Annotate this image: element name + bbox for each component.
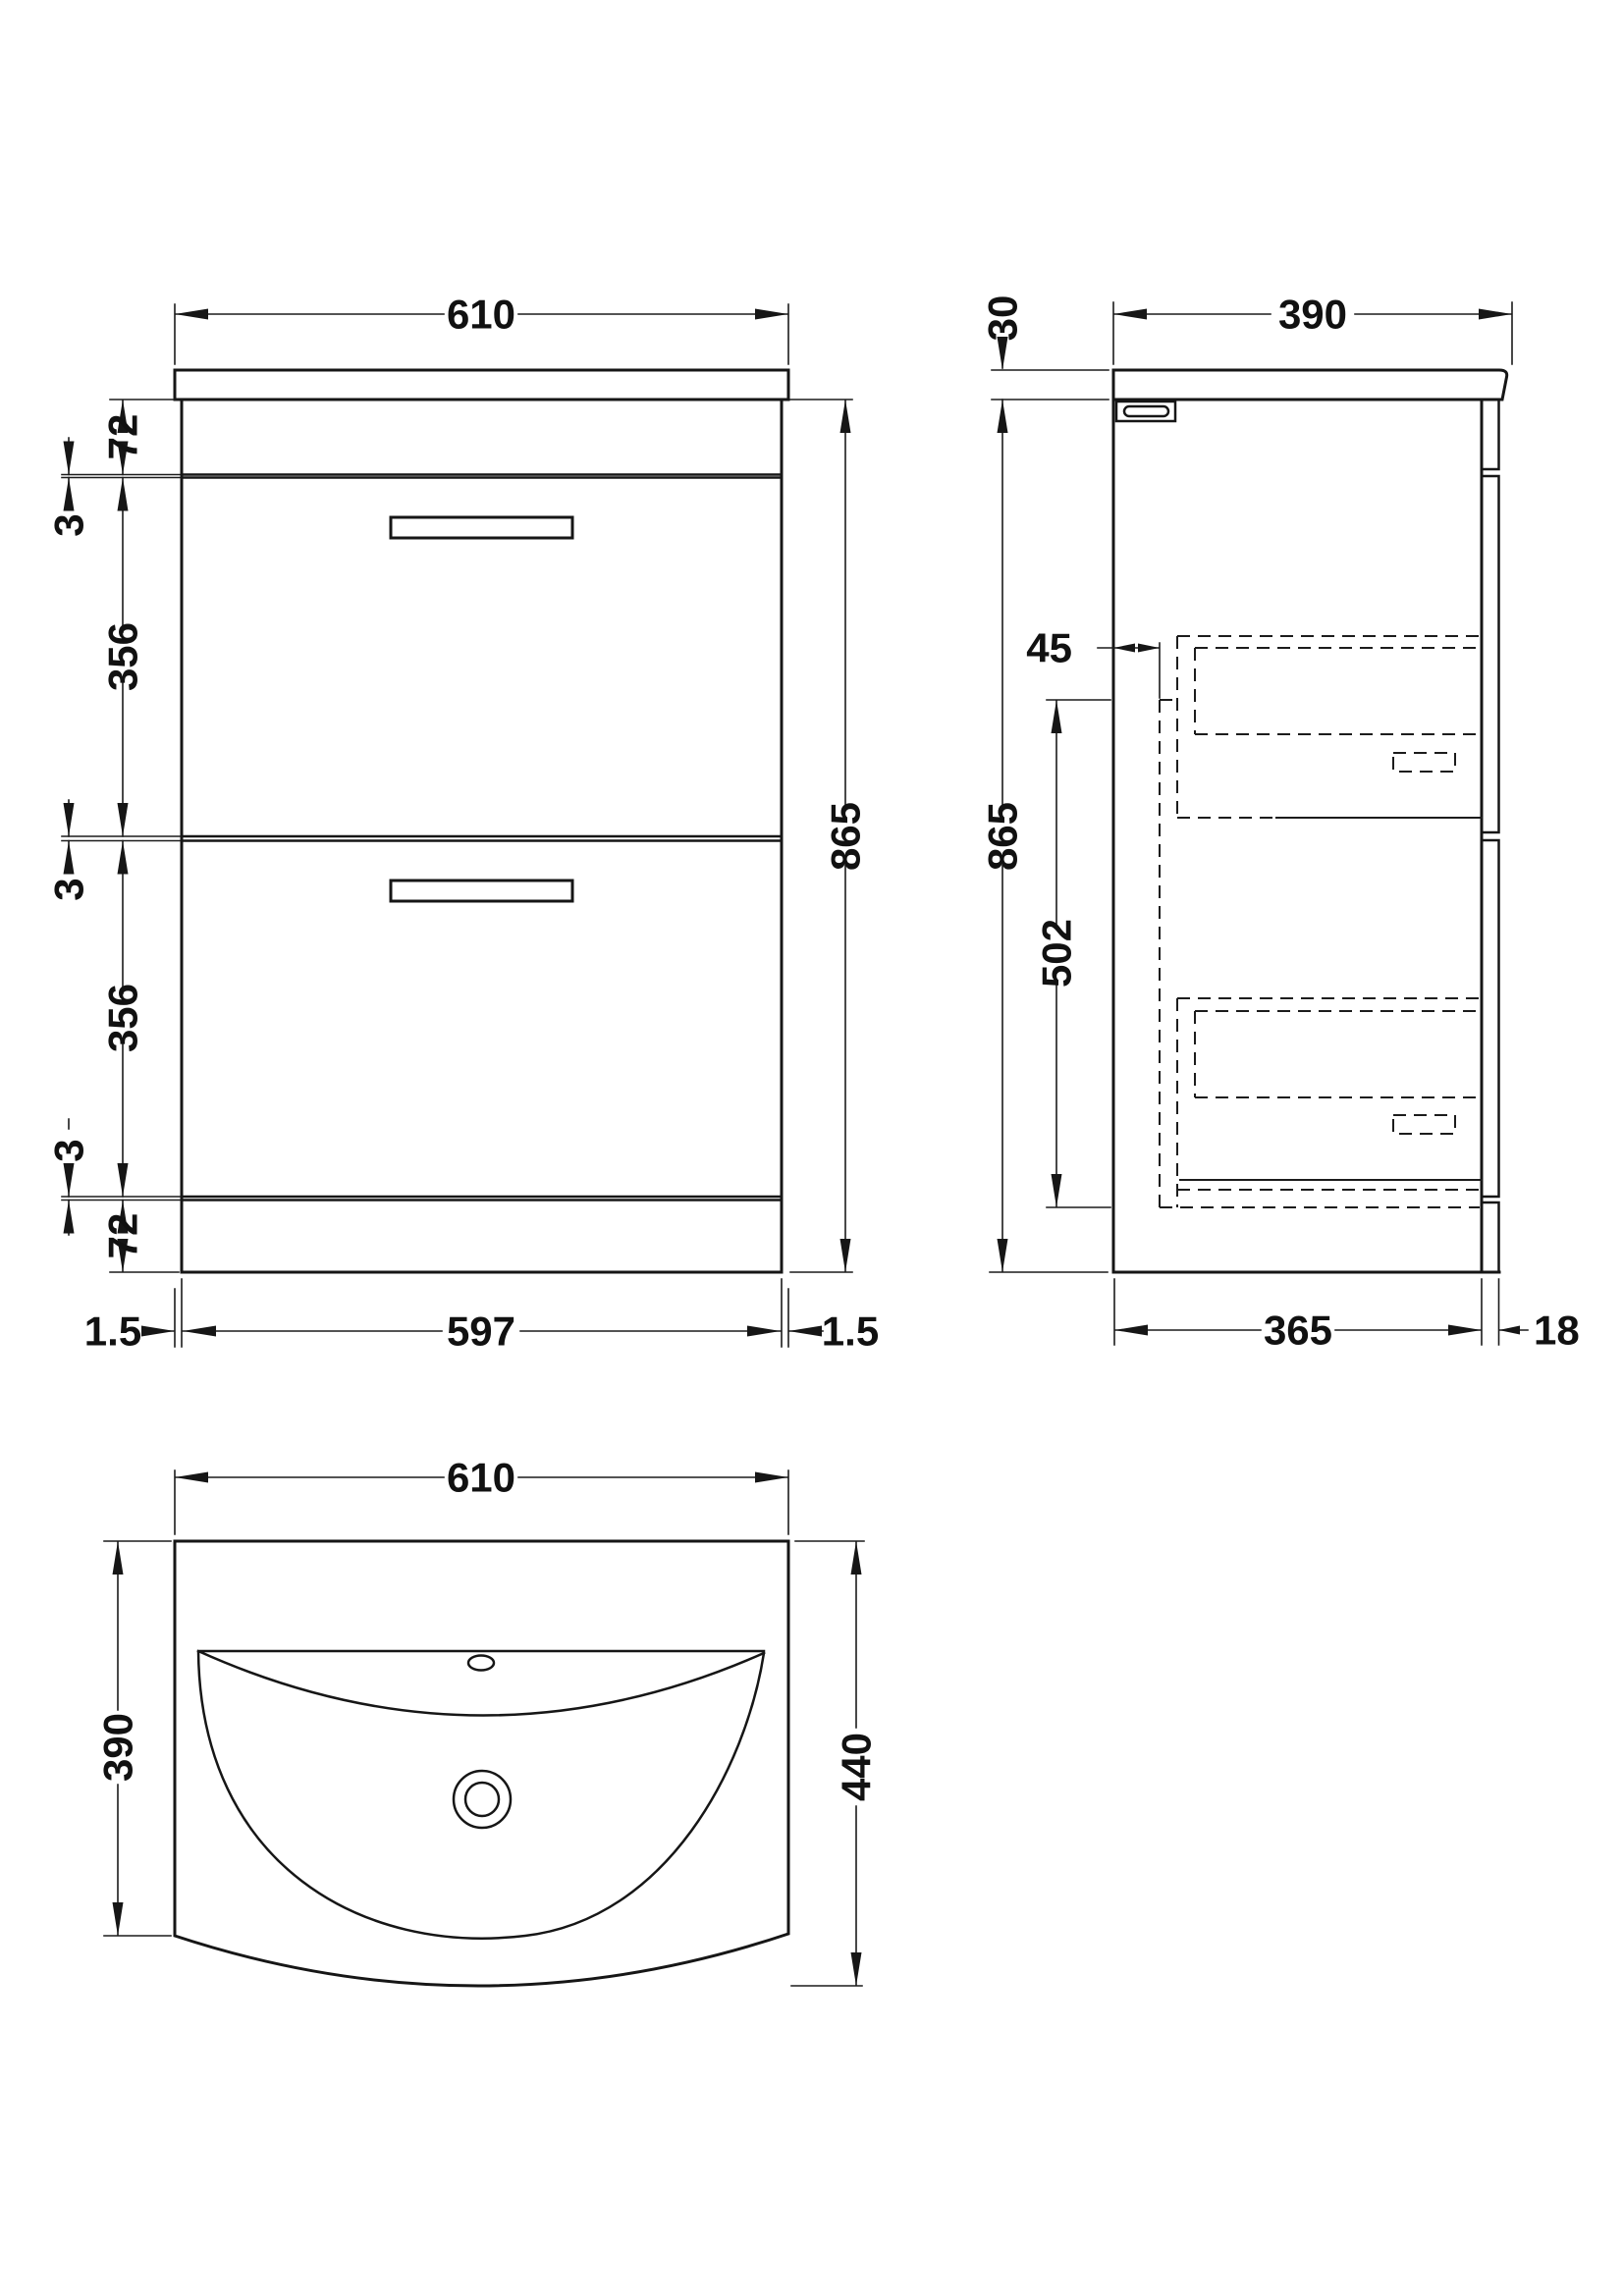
dim-label-plan-width: 610 xyxy=(447,1455,515,1501)
dim-side-bottom: 365 18 xyxy=(1114,1279,1580,1354)
plan-waste-inner xyxy=(465,1783,499,1816)
side-view: 390 30 865 45 502 36 xyxy=(980,292,1580,1354)
plan-worktop-outline xyxy=(175,1541,788,1986)
plan-view: 610 390 440 xyxy=(95,1455,880,1987)
front-view: 610 865 72 356 356 72 3 3 3 xyxy=(46,292,880,1355)
dim-side-depth-top: 390 xyxy=(1113,292,1512,365)
dim-plan-overall-depth: 440 xyxy=(791,1541,880,1986)
dim-label-side-back-gap: 45 xyxy=(1026,625,1072,671)
dim-label-front-width-top: 610 xyxy=(447,292,515,338)
dim-side-height: 865 xyxy=(980,400,1109,1272)
plan-basin-bowl xyxy=(198,1651,764,1939)
drawing-sheet: 610 865 72 356 356 72 3 3 3 xyxy=(0,0,1623,2296)
dim-plan-width: 610 xyxy=(175,1455,788,1535)
dim-label-front-plinth: 72 xyxy=(100,1213,146,1259)
dim-label-plan-overall-depth: 440 xyxy=(834,1733,880,1801)
front-drawer-gap-lines xyxy=(182,475,782,1201)
dim-label-front-drawer-lower: 356 xyxy=(100,984,146,1052)
dim-label-front-gap-bottom: 3 xyxy=(46,1139,92,1161)
front-cabinet-outline xyxy=(175,370,788,1272)
dim-plan-basin-depth: 390 xyxy=(95,1541,172,1936)
dim-label-front-top-rail: 72 xyxy=(100,414,146,460)
plan-tap-hole xyxy=(468,1656,494,1671)
dim-front-width-top: 610 xyxy=(175,292,788,365)
dim-label-front-overhang-right: 1.5 xyxy=(822,1308,879,1355)
dim-label-front-gap-top: 3 xyxy=(46,513,92,536)
dim-front-height: 865 xyxy=(790,400,869,1272)
dim-label-front-drawer-upper: 356 xyxy=(100,622,146,691)
dim-side-box-span: 502 xyxy=(1034,700,1111,1207)
dim-label-plan-basin-depth: 390 xyxy=(95,1713,141,1782)
front-gap-extension-lines xyxy=(62,475,180,1201)
vanity-technical-drawing: 610 865 72 356 356 72 3 3 3 xyxy=(0,0,1623,2296)
dim-label-side-depth-top: 390 xyxy=(1278,292,1347,338)
side-drawer-boxes-hidden xyxy=(1160,636,1482,1207)
dim-front-bottom: 1.5 597 1.5 xyxy=(84,1279,879,1355)
side-outline xyxy=(1113,370,1507,1272)
dim-label-front-body-width: 597 xyxy=(447,1308,515,1355)
dim-side-back-gap: 45 xyxy=(1026,625,1160,699)
side-front-panels xyxy=(1482,400,1499,1272)
plan-waste-outer xyxy=(454,1771,511,1828)
dim-label-front-height: 865 xyxy=(823,802,869,871)
dim-label-side-worktop: 30 xyxy=(980,295,1026,342)
dim-label-side-body-depth: 365 xyxy=(1264,1308,1332,1354)
dim-side-worktop: 30 xyxy=(980,295,1109,400)
dim-label-side-height: 865 xyxy=(980,802,1026,871)
dim-label-side-box-span: 502 xyxy=(1034,919,1080,988)
dim-label-side-front-thickness: 18 xyxy=(1534,1308,1580,1354)
dim-label-front-gap-mid: 3 xyxy=(46,878,92,900)
side-bracket-slot xyxy=(1124,406,1168,416)
dim-label-front-overhang-left: 1.5 xyxy=(84,1308,141,1355)
